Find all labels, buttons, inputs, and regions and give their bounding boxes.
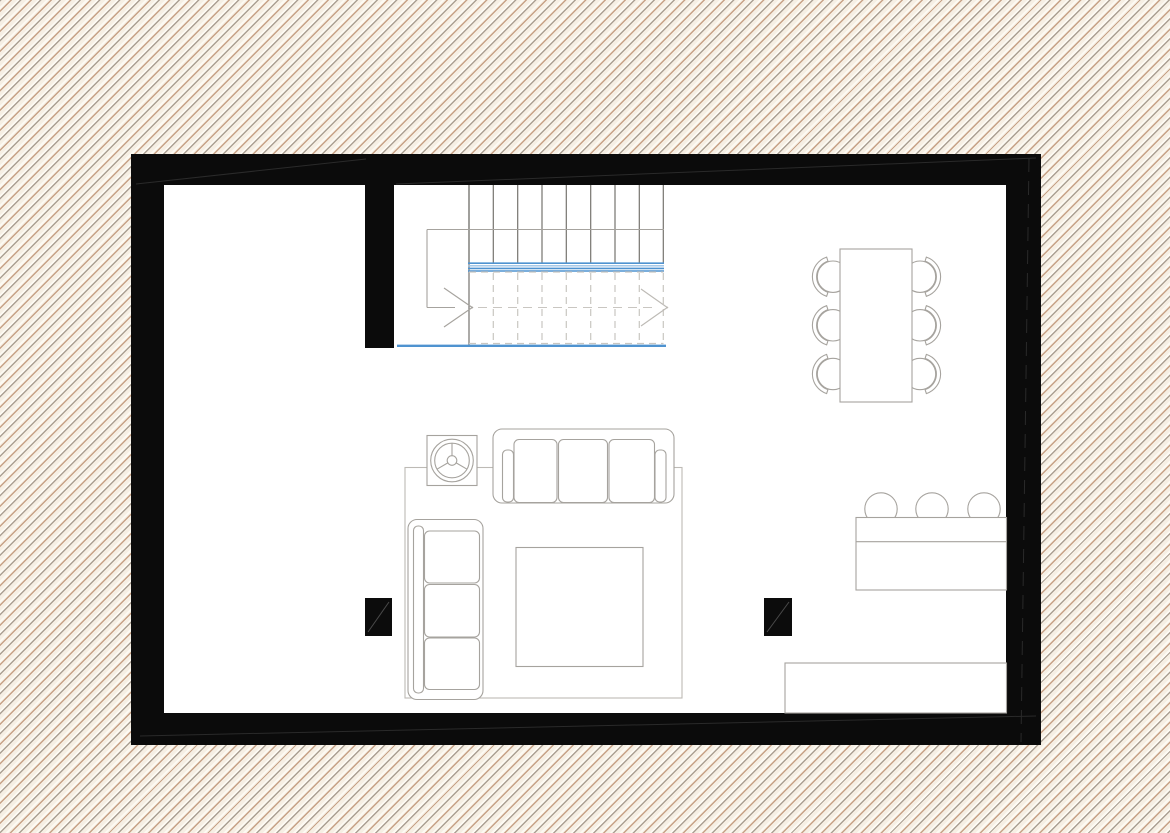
stair-risers xyxy=(469,185,663,263)
staircase xyxy=(397,185,668,346)
structural-column xyxy=(365,598,392,636)
dining-table xyxy=(840,249,912,402)
stair-upper-flight-dashed xyxy=(493,273,663,343)
stair-walkline xyxy=(427,230,473,328)
stair-blue-band xyxy=(468,263,664,271)
coffee-table xyxy=(516,548,643,667)
structural-column xyxy=(764,598,792,636)
bar-counter xyxy=(856,518,1007,591)
stair-dashed-walkline xyxy=(478,289,668,326)
sofa-three-seat-top xyxy=(493,429,674,503)
side-table-with-plant xyxy=(427,436,477,486)
kitchen-counter xyxy=(785,663,1007,713)
floor-plan-canvas xyxy=(0,0,1170,833)
sofa-three-seat-left xyxy=(408,520,483,700)
plan-linework xyxy=(0,0,1170,833)
